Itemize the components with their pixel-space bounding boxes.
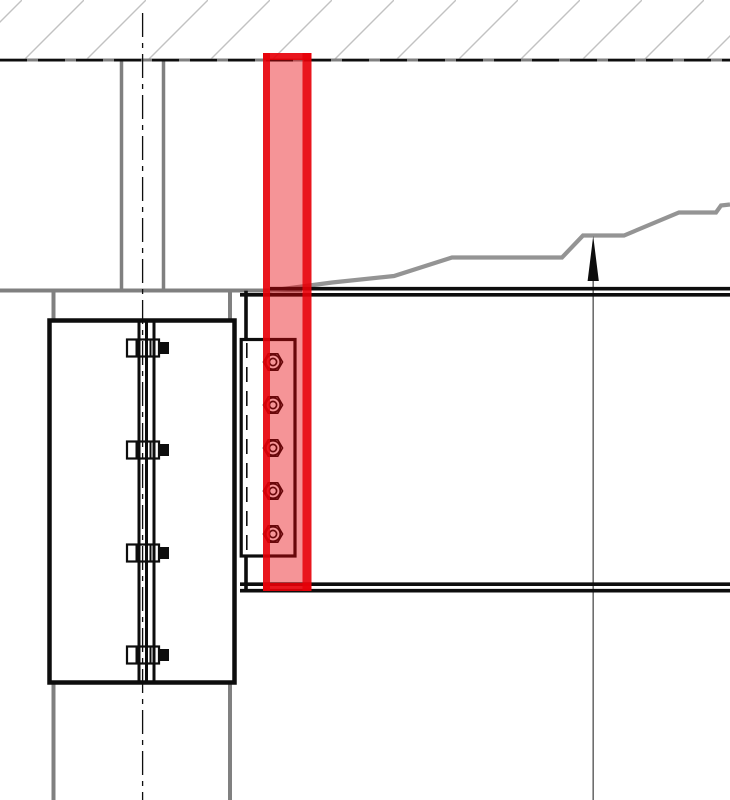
selected-element-highlight[interactable] [263,53,312,591]
cad-drawing [0,0,730,800]
drawing-canvas[interactable] [0,0,730,800]
highlight-top-edge[interactable] [263,53,312,60]
bolt-thread-tip [159,445,169,456]
highlight-right-edge[interactable] [303,53,312,591]
slab-hatch-region [0,0,730,61]
bolt-thread-tip [159,343,169,354]
bolt-thread-tip [159,650,169,661]
bolt-thread-tip [159,548,169,559]
highlight-bottom-edge[interactable] [263,583,312,591]
highlight-left-edge[interactable] [263,53,270,591]
